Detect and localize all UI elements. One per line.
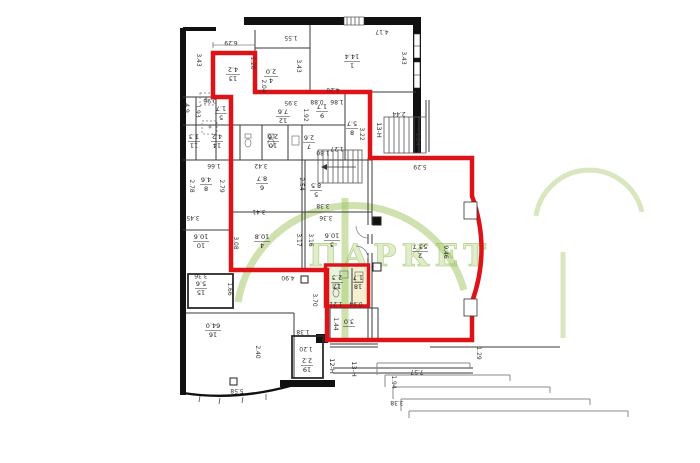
svg-text:10.6: 10.6 <box>194 233 208 241</box>
svg-text:10: 10 <box>197 242 205 250</box>
dimension: 3.36 <box>319 214 333 221</box>
room-label-6: 68.7 <box>256 175 268 192</box>
dimension: 1.24 <box>414 132 421 146</box>
dimension: 4.90 <box>281 274 295 281</box>
pilaster <box>373 263 381 271</box>
dimension: 3.43 <box>295 59 302 73</box>
dimension: 0.94 <box>349 300 363 307</box>
room-label-13: 134.2 <box>226 66 240 83</box>
svg-text:5.6: 5.6 <box>196 280 206 288</box>
svg-text:53.7: 53.7 <box>413 243 427 251</box>
corridor-label-13n-bottom: 13-Н <box>350 361 358 377</box>
dimension: 4.20 <box>326 86 340 93</box>
dimension: 2.04 <box>260 79 267 93</box>
svg-text:2.0: 2.0 <box>266 68 276 76</box>
interior-walls <box>183 25 560 378</box>
svg-text:8: 8 <box>204 185 208 193</box>
svg-text:14: 14 <box>213 142 221 150</box>
room-label-8-big: 85.7 <box>346 120 358 137</box>
room-label-8: 84.6 <box>200 176 212 193</box>
dimension: 3.08 <box>232 236 239 250</box>
room-label-11: 111.3 <box>188 133 200 150</box>
svg-text:4.6: 4.6 <box>201 176 211 184</box>
dimension: 3.16 <box>307 233 314 247</box>
dimension: 3.43 <box>400 51 407 65</box>
dimension: 3.38 <box>316 202 330 209</box>
dimension: 3.42 <box>254 162 268 169</box>
svg-text:18: 18 <box>354 283 362 291</box>
room-label-7: 72.6 <box>303 134 315 151</box>
svg-text:13: 13 <box>229 75 237 83</box>
svg-text:2.6: 2.6 <box>304 134 314 142</box>
dimension: 1.66 <box>226 282 233 296</box>
room-label-15: 155.6 <box>195 280 207 297</box>
svg-text:15: 15 <box>197 289 205 297</box>
corridor-label-12n: 12-Н <box>328 358 336 374</box>
svg-text:4.2: 4.2 <box>228 66 238 74</box>
svg-text:5: 5 <box>219 114 223 122</box>
dimension: 1.21 <box>329 300 343 307</box>
floor-plan-drawing: ПАРКЕТ <box>0 0 700 463</box>
svg-text:16: 16 <box>209 331 217 339</box>
room-label-10-small: 102.6 <box>267 133 279 150</box>
dimension: 3.17 <box>295 233 302 247</box>
dimension: 1.20 <box>249 56 256 70</box>
svg-text:8: 8 <box>350 129 354 137</box>
door-arc <box>356 226 368 238</box>
svg-text:7.6: 7.6 <box>278 108 288 116</box>
svg-text:10.6: 10.6 <box>325 232 339 240</box>
dimension: 3.45 <box>186 214 200 221</box>
dimension: 1.20 <box>299 345 313 352</box>
svg-text:11: 11 <box>190 142 198 150</box>
dimension: 1.66 <box>207 162 221 169</box>
room-label-18: 181.7 <box>353 274 363 291</box>
room-label-12: 127.6 <box>276 108 290 125</box>
dimension: 4.9 <box>183 103 190 113</box>
svg-text:1.3: 1.3 <box>189 133 199 141</box>
watermark-parket: ПАРКЕТ <box>238 170 642 342</box>
dimension: 1.86 <box>330 98 344 105</box>
room-label-14: 144.2 <box>211 133 223 150</box>
svg-text:2.3: 2.3 <box>332 274 342 282</box>
svg-text:7: 7 <box>307 143 311 151</box>
dimension: 1.44 <box>332 317 339 331</box>
dimension: 1.38 <box>296 328 310 335</box>
dimension: 1.92 <box>302 108 309 122</box>
svg-text:2.2: 2.2 <box>302 357 312 365</box>
dimension: 2.40 <box>254 345 261 359</box>
room-label-10: 1010.6 <box>193 233 209 250</box>
dimension: 1.94 <box>390 375 397 389</box>
room-label-1: 114.4 <box>344 53 360 70</box>
room-label-tambour: 3.0 <box>343 318 355 327</box>
dimension: 5.29 <box>413 163 427 170</box>
pilaster <box>301 276 308 283</box>
dimension: 2.79 <box>218 179 225 193</box>
svg-text:10.8: 10.8 <box>255 233 269 241</box>
svg-text:2: 2 <box>418 252 422 260</box>
floor-plan-viewer: ПАРКЕТ <box>0 0 700 463</box>
dimension: 3.41 <box>252 208 266 215</box>
dimension: 1.27 <box>330 145 344 152</box>
svg-text:19: 19 <box>303 366 311 374</box>
svg-text:1.7: 1.7 <box>353 274 363 282</box>
svg-text:12: 12 <box>279 117 287 125</box>
room-label-5: 58.5 <box>310 182 322 199</box>
svg-text:6: 6 <box>260 184 264 192</box>
dimension: 1.29 <box>475 346 482 360</box>
dimension: 3.95 <box>284 99 298 106</box>
pilaster <box>373 217 381 225</box>
stair-arrow <box>321 164 327 170</box>
dimension: 0.96 <box>203 97 217 104</box>
svg-text:1: 1 <box>350 62 354 70</box>
dimension: 9.46 <box>442 245 449 259</box>
room-label-5-small: 51.7 <box>215 105 227 122</box>
dimension: 1.55 <box>284 34 298 41</box>
svg-text:17: 17 <box>333 283 341 291</box>
dimension: 0.88 <box>310 98 324 105</box>
svg-text:2.6: 2.6 <box>268 133 278 141</box>
dimension: 7.57 <box>410 368 424 375</box>
svg-text:8.5: 8.5 <box>311 182 321 190</box>
watermark-arc-small <box>536 170 642 216</box>
svg-text:3: 3 <box>330 241 334 249</box>
svg-text:4: 4 <box>269 77 273 85</box>
svg-text:64.0: 64.0 <box>206 322 220 330</box>
svg-text:14.4: 14.4 <box>345 53 359 61</box>
dimension: 4.17 <box>375 28 389 35</box>
svg-text:5.7: 5.7 <box>347 120 357 128</box>
svg-text:4.2: 4.2 <box>212 133 222 141</box>
room-label-16: 1664.0 <box>205 322 221 339</box>
pilaster <box>230 378 237 385</box>
svg-text:10: 10 <box>269 142 277 150</box>
svg-text:5: 5 <box>314 191 318 199</box>
dimension: 3.22 <box>358 127 365 141</box>
svg-text:1.7: 1.7 <box>216 105 226 113</box>
corridor-label-13n-top: 13-Н <box>375 122 383 138</box>
dimension: 3.36 <box>194 272 208 279</box>
svg-text:8.7: 8.7 <box>257 175 267 183</box>
dimension: 2.44 <box>392 110 406 117</box>
room-label-19: 192.2 <box>301 357 313 374</box>
dimension: 2.78 <box>188 179 195 193</box>
dimension: 2.54 <box>298 177 305 191</box>
dimension: 1.80 <box>316 149 330 156</box>
dimensions: 6.29 1.20 1.55 4.17 3.43 3.43 3.43 2.04 … <box>183 28 482 406</box>
dimension: 5.58 <box>230 387 244 394</box>
bay-niche <box>464 202 477 219</box>
dimension: 3.43 <box>195 53 202 67</box>
dimension: 3.38 <box>390 399 404 406</box>
dimension: 1.93 <box>194 104 201 118</box>
bay-niche <box>464 299 477 316</box>
svg-text:9: 9 <box>320 112 324 120</box>
dimension: 3.70 <box>311 293 318 307</box>
svg-text:4: 4 <box>260 242 264 250</box>
svg-text:3.0: 3.0 <box>344 318 354 326</box>
